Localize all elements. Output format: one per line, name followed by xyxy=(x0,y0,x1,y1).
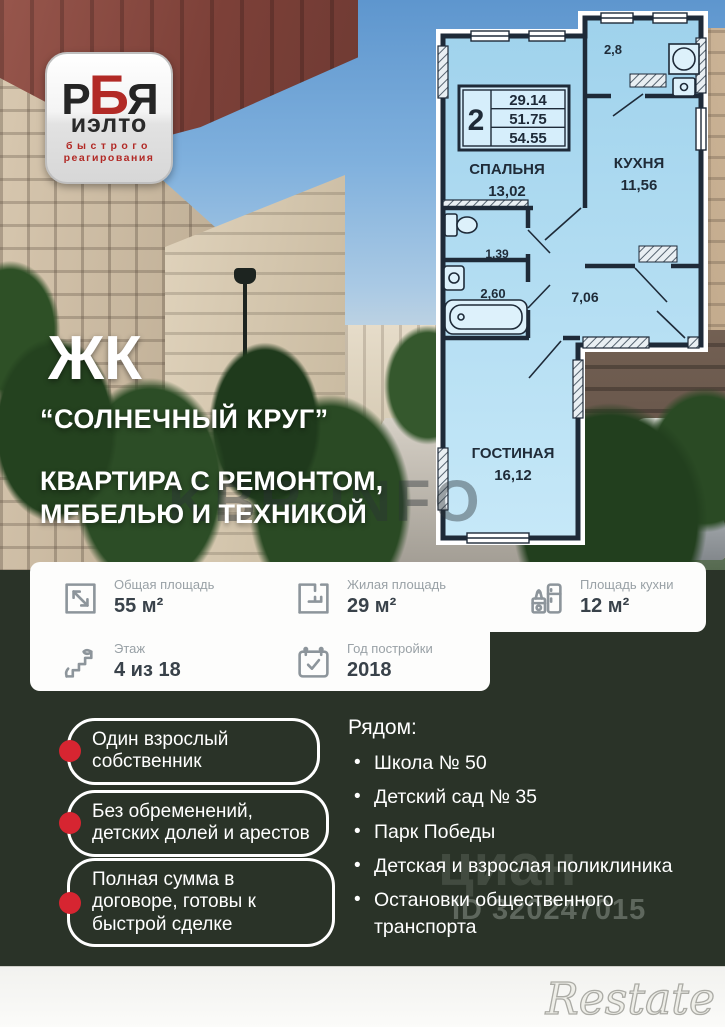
toilet-icon xyxy=(445,214,457,236)
stat-label: Этаж xyxy=(114,642,181,656)
stat-label: Год постройки xyxy=(347,642,433,656)
highlight-pill-2: Без обременений, детских долей и арестов xyxy=(67,790,329,857)
stat-total-area: Общая площадь 55 м² xyxy=(62,578,214,617)
label-balcony-area: 2,8 xyxy=(604,42,622,57)
floor-plan: 2 29.14 51.75 54.55 СПАЛЬНЯ 13,02 КУХНЯ … xyxy=(433,8,714,548)
label-wc-area: 1,39 xyxy=(485,247,509,261)
stairs-icon xyxy=(62,644,99,681)
floorplan-icon xyxy=(295,580,332,617)
highlight-pill-1: Один взрослый собственник xyxy=(67,718,320,785)
offer-subtitle: КВАРТИРА С РЕМОНТОМ, МЕБЕЛЬЮ И ТЕХНИКОЙ xyxy=(40,465,383,532)
nearby-item: Остановки общественного транспорта xyxy=(374,887,710,942)
stat-value: 29 м² xyxy=(347,596,446,616)
toilet-bowl-icon xyxy=(457,217,477,233)
agency-logo-tagline-2: реагирования xyxy=(64,152,155,165)
restate-watermark: Restate xyxy=(546,974,715,1025)
nearby-item: Детская и взрослая поликлиника xyxy=(374,853,710,880)
stat-floor: Этаж 4 из 18 xyxy=(62,642,181,681)
kitchen-icon xyxy=(528,580,565,617)
stat-value: 12 м² xyxy=(580,596,673,616)
complex-prefix: ЖК xyxy=(48,328,383,390)
real-estate-flyer: РБЯ иэлто быстрого реагирования ЖК “СОЛН… xyxy=(0,0,725,1027)
plan-area-stamp: 2 29.14 51.75 54.55 xyxy=(459,86,569,150)
stamp-area-3: 54.55 xyxy=(509,130,547,147)
agency-logo-tagline-1: быстрого xyxy=(66,141,152,152)
label-kitchen: КУХНЯ xyxy=(614,155,664,172)
nearby-item: Парк Победы xyxy=(374,819,710,846)
nearby-item: Школа № 50 xyxy=(374,750,710,777)
nearby-item: Детский сад № 35 xyxy=(374,784,710,811)
label-bedroom: СПАЛЬНЯ xyxy=(469,161,545,178)
agency-logo-word: иэлто xyxy=(71,112,148,137)
stat-label: Площадь кухни xyxy=(580,578,673,592)
stat-label: Жилая площадь xyxy=(347,578,446,592)
label-living: ГОСТИНАЯ xyxy=(472,445,555,462)
agency-logo: РБЯ иэлто быстрого реагирования xyxy=(45,52,173,184)
stamp-rooms-count: 2 xyxy=(468,104,485,137)
label-bedroom-area: 13,02 xyxy=(488,183,526,200)
stamp-area-2: 51.75 xyxy=(509,111,547,128)
stamp-area-1: 29.14 xyxy=(509,92,547,109)
nearby-list: Школа № 50 Детский сад № 35 Парк Победы … xyxy=(348,750,710,942)
stat-label: Общая площадь xyxy=(114,578,214,592)
area-arrow-icon xyxy=(62,580,99,617)
stat-value: 2018 xyxy=(347,660,433,680)
stat-living-area: Жилая площадь 29 м² xyxy=(295,578,446,617)
label-hall-area: 7,06 xyxy=(571,289,598,305)
label-kitchen-area: 11,56 xyxy=(621,177,658,194)
stat-value: 55 м² xyxy=(114,596,214,616)
stat-year-built: Год постройки 2018 xyxy=(295,642,433,681)
nearby-section: Рядом: Школа № 50 Детский сад № 35 Парк … xyxy=(348,716,710,949)
nearby-title: Рядом: xyxy=(348,716,710,740)
complex-name: “СОЛНЕЧНЫЙ КРУГ” xyxy=(40,404,383,435)
stat-kitchen-area: Площадь кухни 12 м² xyxy=(528,578,673,617)
label-living-area: 16,12 xyxy=(494,467,532,484)
calendar-check-icon xyxy=(295,644,332,681)
headline: ЖК “СОЛНЕЧНЫЙ КРУГ” КВАРТИРА С РЕМОНТОМ,… xyxy=(40,328,383,532)
stat-value: 4 из 18 xyxy=(114,660,181,680)
label-bath-area: 2,60 xyxy=(480,286,505,301)
highlight-pill-3: Полная сумма в договоре, готовы к быстро… xyxy=(67,858,335,947)
